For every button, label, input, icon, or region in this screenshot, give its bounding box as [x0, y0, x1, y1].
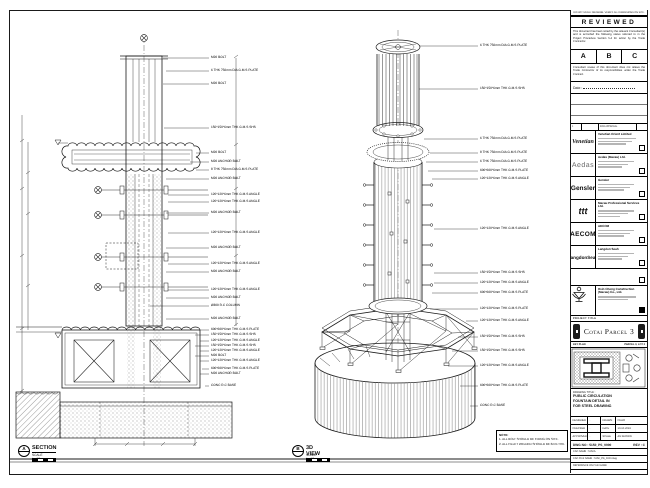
ornament-right [638, 324, 645, 339]
revision-description: FOR APPROVAL [599, 124, 637, 130]
scale-value: AS SHOWN [616, 433, 647, 440]
drawn-label: DRAWN [601, 417, 616, 424]
callout-label: 8 THK 750mm DIA G.M.S PLATE [480, 151, 527, 154]
contractor-logo [571, 286, 596, 315]
callout-label: 8 THK 750mm DIA G.M.S PLATE [211, 168, 258, 171]
drawing-sheet: M20 BOLT 6 THK 750mm DIA G.M.S PLATE M20… [0, 0, 650, 488]
party-row-mps: ttt Macau Professional Services Ltd. [571, 200, 647, 223]
iso-view-linework [315, 30, 478, 438]
callout-label: M20 BOLT [211, 82, 226, 85]
section-view-linework [16, 34, 238, 446]
venetian-logo: Venetian [571, 131, 596, 153]
callout-label: 150*150*6mm THK G.M.S SHS [211, 333, 256, 336]
callout-label: M20 ANCHOR BOLT [211, 270, 241, 273]
approved-label: APPROVED [571, 433, 588, 440]
callout-label: 120*120*6mm THK G.M.S ANGLE [211, 349, 260, 352]
blank-party-row [571, 269, 647, 286]
callout-label: 120*120*6mm THK G.M.S ANGLE [211, 359, 260, 362]
callout-label: CONC R.C BASE [480, 404, 505, 407]
callout-label: 150*150*6mm THK G.M.S SHS [480, 271, 525, 274]
revision-by [637, 124, 647, 130]
party-name: Gensler [598, 179, 645, 183]
date-label: DATE [601, 425, 616, 432]
graphic-scale-bar [32, 458, 56, 462]
callout-label: 600*600*6mm THK G.M.S PLATE [211, 367, 259, 370]
callout-label: M20 ANCHOR BOLT [211, 372, 241, 375]
inner-frame-lines [10, 459, 570, 462]
reviewed-date-row: Date : [571, 82, 647, 94]
callout-label: M20 BOLT [211, 354, 226, 357]
callout-label: M20 BOLT [211, 151, 226, 154]
reviewed-stamp: REVIEWED [571, 16, 647, 28]
callout-label: 120*120*6mm THK G.M.S ANGLE [480, 319, 529, 322]
callout-label: 600*600*6mm THK G.M.S PLATE [480, 291, 528, 294]
callout-label: 150*150*6mm THK G.M.S SHS [480, 87, 525, 90]
party-checkbox [639, 191, 646, 198]
callout-label: 120*120*6mm THK G.M.S ANGLE [480, 177, 529, 180]
view-title: SECTION [32, 445, 56, 453]
title-block: DO NOT SCALE DRAWING. VERIFY ALL DIMENSI… [570, 10, 647, 473]
party-checkbox [639, 145, 646, 152]
detail-bubble: B [292, 445, 304, 457]
callout-label: 120*120*6mm THK G.M.S ANGLE [480, 281, 529, 284]
drawing-title-box: DRAWING TITLE : PUBLIC CIRCULATION FOUNT… [571, 389, 647, 417]
revision-date [582, 124, 599, 130]
general-notes: NOTE: 1. ALL BOLT SHOULD BE FIXING ON SI… [496, 430, 568, 452]
status-options: A B C [571, 50, 647, 64]
date-label: Date : [573, 86, 582, 90]
callout-label: 120*120*6mm THK G.M.S ANGLE [480, 227, 529, 230]
drawing-title-line: FOR STEEL DRAWING [573, 404, 645, 409]
callout-label: 120*120*6mm THK G.M.S ANGLE [211, 339, 260, 342]
party-checkbox [639, 277, 646, 284]
party-checkbox [639, 214, 646, 221]
callout-label: M20 BOLT [211, 56, 226, 59]
callout-label: CONC R.C BASE [211, 384, 236, 387]
project-name-row: Cotai Parcel 3 [571, 322, 647, 342]
callout-label: 120*120*6mm THK G.M.S PLATE [480, 307, 528, 310]
fields-table: DESIGNED - DRAWN CHAO CHECKED - DATE 10-… [571, 417, 647, 441]
keyplan-parcel: PARCEL 3, LOT 2 [624, 342, 645, 347]
status-c: C [622, 50, 647, 63]
party-checkbox [639, 237, 646, 244]
mps-logo: ttt [571, 200, 596, 222]
project-name: Cotai Parcel 3 [584, 327, 634, 336]
checked-label: CHECKED [571, 425, 588, 432]
revision-blank-rows [571, 94, 647, 124]
note-line: 2. ALL FILLET WELDED SHOULD BE 6mm THK. [499, 442, 565, 447]
status-b: B [597, 50, 623, 63]
party-row-gensler: Gensler Gensler [571, 177, 647, 200]
party-row-venetian: Venetian Venetian Orient Limited [571, 131, 647, 154]
callout-label: M20 ANCHOR BOLT [211, 296, 241, 299]
party-row-langdonseah: LangdonSeah Langdon Seah [571, 246, 647, 269]
scale-label: SCALE [601, 433, 616, 440]
designed-label: DESIGNED [571, 417, 588, 424]
callout-label: 150*150*6mm THK G.M.S SHS [480, 349, 525, 352]
date-line [583, 84, 635, 89]
callout-label: M20 ANCHOR BOLT [211, 246, 241, 249]
checked-value: - [588, 425, 601, 432]
cad-file: CAD FILE NAME : 5150_PS_0000.dwg [571, 456, 647, 463]
party-row-aedas: Aedas Aedas (Macau) Ltd. [571, 154, 647, 177]
callout-label: M20 ANCHOR BOLT [211, 317, 241, 320]
callout-label: M20 ANCHOR BOLT [211, 177, 241, 180]
status-a: A [571, 50, 597, 63]
callout-label: 120*120*6mm THK G.M.S ANGLE [211, 262, 260, 265]
drawn-value: CHAO [616, 417, 647, 424]
party-checkbox [639, 168, 646, 175]
dwg-number: DWG NO : 5150_PS_0000 [573, 441, 611, 448]
callout-label: 6 THK 750mm DIA G.M.S PLATE [211, 69, 258, 72]
callout-label: 120*120*6mm THK G.M.S ANGLE [211, 231, 260, 234]
ornament-left [573, 324, 580, 339]
contractor-mark [639, 307, 646, 314]
party-checkbox [639, 260, 646, 267]
callout-label: Ø300 R.C COLUMN [211, 304, 240, 307]
callout-label: 120*120*6mm THK G.M.S ANGLE [211, 193, 260, 196]
callout-label: 6 THK 750mm DIA G.M.S PLATE [480, 44, 527, 47]
detail-bubble: A [18, 445, 30, 457]
aecom-logo: AECOM [571, 223, 596, 245]
callout-label: 600*600*6mm THK G.M.S PLATE [211, 328, 259, 331]
aedas-logo: Aedas [571, 154, 596, 176]
reference-row: REFERENCE ON FILE NAME [571, 463, 647, 470]
callout-label: M20 ANCHOR BOLT [211, 211, 241, 214]
callout-label: 120*120*6mm THK G.M.S ANGLE [211, 288, 260, 291]
drawing-canvas [0, 0, 650, 488]
revision-number: 1 [571, 124, 582, 130]
party-name: AECOM [598, 225, 645, 229]
contractor-row: Hsin Chong Construction (Macau) Co., Ltd… [571, 286, 647, 316]
reviewed-paragraph-2: Consultant review of this document does … [571, 64, 647, 82]
callout-label: 150*150*6mm THK G.M.S SHS [480, 335, 525, 338]
date-value: 10-10-2019 [616, 425, 647, 432]
langdonseah-logo: LangdonSeah [571, 246, 596, 268]
contractor-name-2: (Macau) Co., Ltd. [598, 291, 645, 295]
callout-label: 6 THK 750mm DIA G.M.S PLATE [480, 160, 527, 163]
callout-label: M20 ANCHOR BOLT [211, 160, 241, 163]
cad-name: CAD NAME : 5150A [571, 449, 647, 456]
callout-label: 120*120*6mm THK G.M.S ANGLE [211, 200, 260, 203]
approved-value: - [588, 433, 601, 440]
graphic-scale-bar [306, 458, 330, 462]
keyplan-label: KEY PLAN [573, 342, 586, 347]
callout-label: 6 THK 750mm DIA G.M.S PLATE [480, 137, 527, 140]
note-line: 1. ALL BOLT SHOULD BE FIXING ON SITE. [499, 437, 565, 442]
callout-label: 150*150*6mm THK G.M.S SHS [211, 344, 256, 347]
party-row-aecom: AECOM AECOM [571, 223, 647, 246]
party-name: Langdon Seah [598, 248, 645, 252]
party-name: Macau Professional Services Ltd. [598, 202, 645, 209]
callout-label: 150*150*6mm THK G.M.S SHS [211, 126, 256, 129]
party-name: Venetian Orient Limited [598, 133, 645, 137]
dwg-number-row: DWG NO : 5150_PS_0000 REV : C [571, 441, 647, 449]
callout-label: 120*120*6mm THK G.M.S ANGLE [480, 364, 529, 367]
reviewed-paragraph-1: This document has been noted by the rele… [571, 28, 647, 50]
callout-label: 600*600*6mm THK G.M.S PLATE [480, 169, 528, 172]
party-name: Aedas (Macau) Ltd. [598, 156, 645, 160]
gensler-logo: Gensler [571, 177, 596, 199]
rev-value: REV : C [633, 441, 645, 448]
designed-value: - [588, 417, 601, 424]
revision-row: 1 FOR APPROVAL [571, 124, 647, 131]
keyplan-map [571, 348, 647, 389]
callout-label: 600*600*6mm THK G.M.S PLATE [480, 384, 528, 387]
